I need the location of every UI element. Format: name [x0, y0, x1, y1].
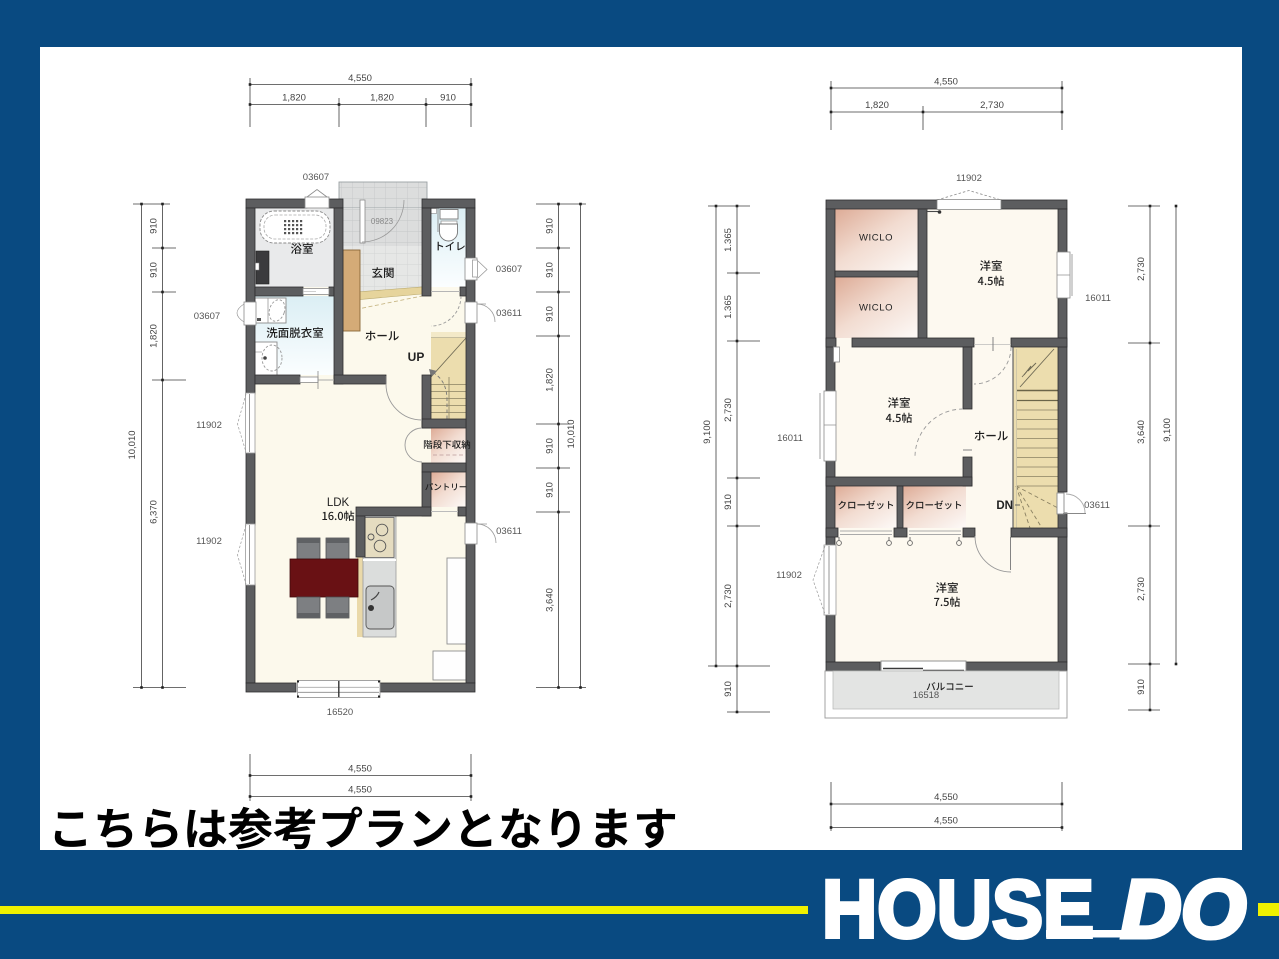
- svg-text:10,010: 10,010: [127, 430, 138, 459]
- svg-text:3,640: 3,640: [545, 588, 556, 612]
- svg-text:910: 910: [545, 218, 556, 234]
- svg-text:910: 910: [723, 494, 734, 510]
- svg-text:DN: DN: [996, 500, 1013, 512]
- svg-text:11902: 11902: [956, 173, 982, 184]
- svg-text:910: 910: [440, 93, 456, 104]
- svg-text:4,550: 4,550: [934, 792, 958, 803]
- svg-text:16011: 16011: [1085, 293, 1111, 304]
- svg-text:1,820: 1,820: [545, 368, 556, 392]
- svg-text:09823: 09823: [371, 217, 394, 226]
- svg-text:2,730: 2,730: [980, 100, 1004, 111]
- svg-text:16518: 16518: [913, 690, 939, 701]
- svg-text:9,100: 9,100: [1162, 418, 1173, 442]
- svg-text:2,730: 2,730: [1136, 257, 1147, 281]
- svg-text:910: 910: [149, 262, 160, 278]
- svg-text:WICLO: WICLO: [859, 303, 893, 314]
- svg-text:910: 910: [1136, 679, 1147, 695]
- svg-text:910: 910: [545, 306, 556, 322]
- svg-text:UP: UP: [408, 350, 425, 364]
- svg-text:910: 910: [723, 681, 734, 697]
- svg-text:16520: 16520: [327, 707, 353, 718]
- svg-text:03611: 03611: [496, 308, 522, 319]
- svg-text:4,550: 4,550: [934, 77, 958, 88]
- svg-text:9,100: 9,100: [702, 420, 713, 444]
- svg-text:1,820: 1,820: [865, 100, 889, 111]
- svg-text:2,730: 2,730: [1136, 577, 1147, 601]
- svg-text:3,640: 3,640: [1136, 420, 1147, 444]
- svg-text:DO: DO: [1121, 864, 1246, 955]
- svg-text:2,730: 2,730: [723, 584, 734, 608]
- svg-text:03607: 03607: [496, 264, 522, 275]
- svg-text:10,010: 10,010: [566, 419, 577, 448]
- svg-text:03611: 03611: [1084, 500, 1110, 511]
- svg-text:910: 910: [545, 262, 556, 278]
- svg-text:1,820: 1,820: [370, 93, 394, 104]
- svg-text:LDK: LDK: [327, 497, 350, 509]
- svg-text:910: 910: [545, 438, 556, 454]
- svg-text:6,370: 6,370: [149, 500, 160, 524]
- svg-text:4,550: 4,550: [348, 785, 372, 796]
- svg-text:03607: 03607: [194, 311, 220, 322]
- svg-text:1.365: 1.365: [723, 228, 734, 252]
- svg-text:4,550: 4,550: [348, 73, 372, 84]
- svg-text:03607: 03607: [303, 172, 329, 183]
- svg-text:1,820: 1,820: [149, 324, 160, 348]
- svg-text:4,550: 4,550: [348, 764, 372, 775]
- svg-text:2,730: 2,730: [723, 398, 734, 422]
- svg-text:4,550: 4,550: [934, 816, 958, 827]
- svg-text:03611: 03611: [496, 526, 522, 537]
- svg-text:910: 910: [545, 482, 556, 498]
- svg-text:11902: 11902: [196, 536, 222, 547]
- svg-text:WICLO: WICLO: [859, 233, 893, 244]
- svg-text:1,820: 1,820: [282, 93, 306, 104]
- svg-text:11902: 11902: [776, 570, 802, 581]
- svg-text:16011: 16011: [777, 433, 803, 444]
- svg-text:11902: 11902: [196, 420, 222, 431]
- svg-text:1.365: 1.365: [723, 295, 734, 319]
- svg-text:910: 910: [149, 218, 160, 234]
- svg-text:HOUSE: HOUSE: [822, 864, 1094, 955]
